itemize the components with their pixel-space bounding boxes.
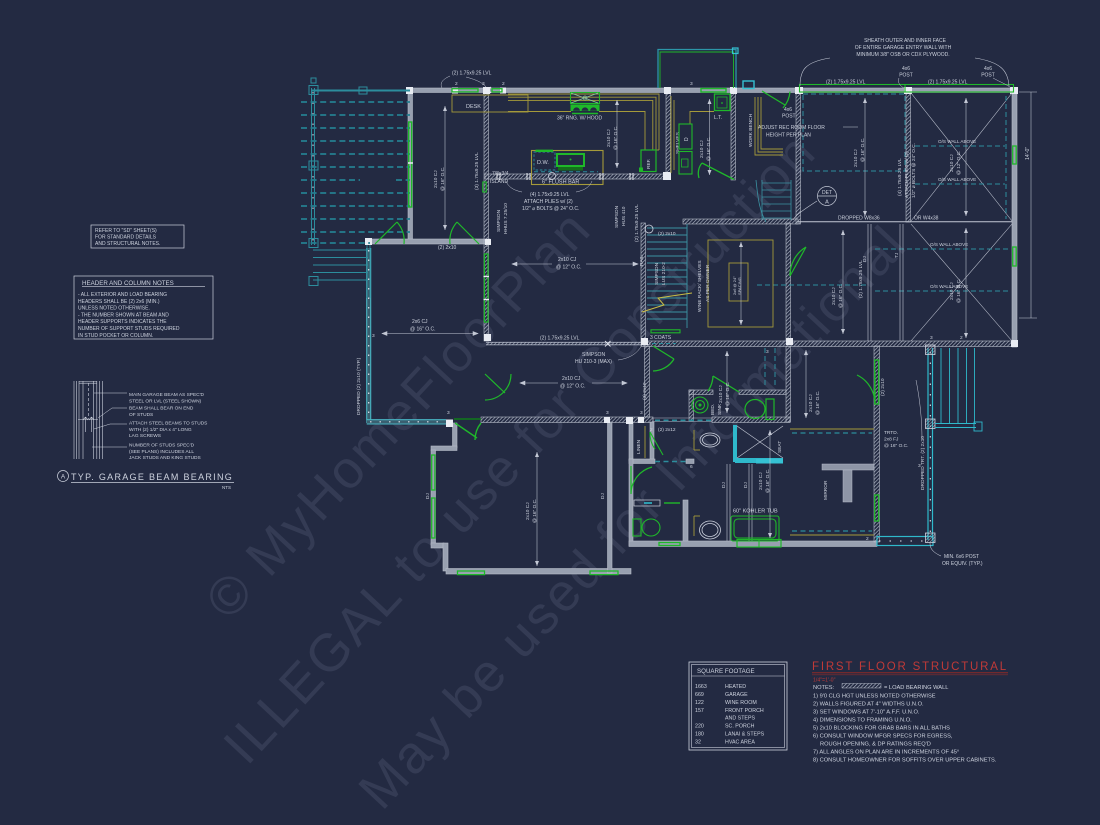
- svg-text:DJ: DJ: [743, 482, 749, 488]
- svg-text:SIMPSON: SIMPSON: [614, 205, 620, 228]
- svg-text:@ 16" O.C.: @ 16" O.C.: [613, 126, 619, 150]
- svg-text:@ 16" O.C.: @ 16" O.C.: [838, 284, 844, 308]
- svg-text:OR EQUIV. (TYP.): OR EQUIV. (TYP.): [942, 561, 983, 567]
- svg-text:2: 2: [960, 335, 963, 341]
- svg-text:3: 3: [690, 81, 693, 87]
- svg-text:3: 3: [486, 243, 489, 249]
- svg-text:(2) 1.75x9.25 LVL: (2) 1.75x9.25 LVL: [452, 71, 492, 77]
- svg-text:@ 12" O.C.: @ 12" O.C.: [560, 384, 585, 390]
- svg-text:LUS 210-2: LUS 210-2: [661, 262, 667, 285]
- svg-text:6) CONSULT WINDOW MFGR SPECS: 6) CONSULT WINDOW MFGR SPECS FOR EGRESS,: [813, 734, 953, 740]
- svg-text:5) 2x10 BLOCKING FOR GRAB BAR: 5) 2x10 BLOCKING FOR GRAB BARS IN ALL BA…: [813, 726, 950, 732]
- svg-text:MAIN GARAGE BEAM AS SPEC'D: MAIN GARAGE BEAM AS SPEC'D: [129, 392, 205, 398]
- svg-text:L.T.: L.T.: [714, 115, 722, 121]
- svg-text:UNLESS NOTED OTHERWISE.: UNLESS NOTED OTHERWISE.: [78, 306, 150, 312]
- svg-text:LANAI & STEPS: LANAI & STEPS: [725, 732, 765, 738]
- svg-text:JACK STUDS AND KING STUDS: JACK STUDS AND KING STUDS: [129, 455, 201, 461]
- svg-text:6" FLUSH BAR: 6" FLUSH BAR: [542, 180, 579, 186]
- svg-text:2: 2: [866, 536, 869, 542]
- svg-text:157: 157: [695, 708, 704, 714]
- svg-text:@ 12" O.C.: @ 12" O.C.: [956, 151, 962, 175]
- svg-text:AND STRUCTURAL NOTES.: AND STRUCTURAL NOTES.: [95, 241, 160, 247]
- svg-text:(3) 1.75x9.25 LVL: (3) 1.75x9.25 LVL: [474, 152, 480, 190]
- svg-text:@ 16" O.C.: @ 16" O.C.: [440, 167, 446, 191]
- svg-text:O/S WALL ABOVE: O/S WALL ABOVE: [938, 139, 976, 144]
- svg-text:(2) 2x10: (2) 2x10: [438, 245, 457, 251]
- svg-text:SC. PORCH: SC. PORCH: [725, 724, 755, 730]
- svg-text:2x10 CJ: 2x10 CJ: [606, 129, 612, 147]
- svg-text:HHUS 7.25/10: HHUS 7.25/10: [503, 203, 509, 234]
- svg-text:2x10 CJ: 2x10 CJ: [558, 257, 577, 263]
- svg-text:NUMBER OF SUPPORT STUDS REQUIR: NUMBER OF SUPPORT STUDS REQUIRED: [78, 326, 180, 332]
- svg-text:- THE NUMBER SHOWN AT BEAM AN: - THE NUMBER SHOWN AT BEAM AND: [78, 312, 169, 318]
- svg-text:3: 3: [606, 410, 609, 416]
- svg-text:14'-0": 14'-0": [1025, 147, 1031, 160]
- svg-text:POST: POST: [981, 73, 995, 79]
- svg-text:8) CONSULT HOMEOWNER FOR SOFF: 8) CONSULT HOMEOWNER FOR SOFFITS OVER UP…: [813, 758, 997, 764]
- svg-text:36" RNG. W/ HOOD: 36" RNG. W/ HOOD: [557, 116, 603, 122]
- svg-text:A: A: [61, 474, 66, 481]
- svg-text:3: 3: [372, 333, 375, 339]
- svg-text:4x6: 4x6: [902, 66, 910, 72]
- svg-text:(2) 1.75x9.25 LVL: (2) 1.75x9.25 LVL: [928, 80, 968, 86]
- svg-text:MINIMUM 3/8" OSB OR CDX PLYWOO: MINIMUM 3/8" OSB OR CDX PLYWOOD.: [856, 52, 949, 58]
- svg-text:1663: 1663: [695, 684, 707, 690]
- svg-text:3: 3: [482, 81, 485, 87]
- svg-text:= LOAD BEARING WALL: = LOAD BEARING WALL: [884, 685, 948, 691]
- svg-text:HEADERS SHALL BE (2) 2x6 (MIN.: HEADERS SHALL BE (2) 2x6 (MIN.): [78, 299, 160, 305]
- svg-text:TJ: TJ: [894, 252, 900, 258]
- svg-text:(4) 1.75x9.25 LVL: (4) 1.75x9.25 LVL: [897, 158, 903, 196]
- svg-text:@ 16" O.C.: @ 16" O.C.: [410, 327, 435, 333]
- svg-text:SEAT: SEAT: [777, 441, 783, 453]
- svg-text:(2) 1.75x9.25 LVL: (2) 1.75x9.25 LVL: [826, 80, 866, 86]
- svg-text:3: 3: [640, 410, 643, 416]
- svg-text:@ 16" O.C.: @ 16" O.C.: [884, 443, 908, 449]
- svg-text:HUS 410: HUS 410: [621, 206, 627, 226]
- svg-text:(2) 1.75x9.25 LVL: (2) 1.75x9.25 LVL: [634, 204, 640, 242]
- svg-text:LINEN: LINEN: [636, 439, 642, 454]
- svg-text:4x6: 4x6: [984, 66, 992, 72]
- svg-text:HEIGHT PER PLAN: HEIGHT PER PLAN: [766, 133, 811, 139]
- svg-text:DJ: DJ: [721, 482, 727, 488]
- svg-text:WINE ROOM: WINE ROOM: [725, 700, 757, 706]
- svg-text:2) WALLS FIGURED AT 4" WIDTHS: 2) WALLS FIGURED AT 4" WIDTHS U.N.O.: [813, 702, 924, 708]
- svg-text:3: 3: [930, 335, 933, 341]
- svg-text:D: D: [684, 137, 690, 141]
- svg-text:60" KOHLER TUB: 60" KOHLER TUB: [733, 509, 778, 515]
- svg-text:@ 16" O.C.: @ 16" O.C.: [956, 279, 962, 303]
- svg-text:4x6: 4x6: [784, 107, 792, 113]
- svg-text:ADJUST REC ROOM FLOOR: ADJUST REC ROOM FLOOR: [758, 125, 825, 131]
- svg-text:1) 9'0 CLG HGT UNLESS NOTED: 1) 9'0 CLG HGT UNLESS NOTED OTHERWISE: [813, 694, 936, 700]
- svg-text:GARAGE: GARAGE: [725, 692, 748, 698]
- svg-text:ROUGH OPENING, & DP RATINGS RE: ROUGH OPENING, & DP RATINGS REQ'D: [820, 742, 931, 748]
- svg-text:FOR STANDARD DETAILS: FOR STANDARD DETAILS: [95, 235, 157, 241]
- svg-text:HEATED: HEATED: [725, 684, 746, 690]
- svg-text:DET: DET: [822, 190, 832, 196]
- svg-text:DROPPED (2) 2x10 (TYP.): DROPPED (2) 2x10 (TYP.): [356, 357, 362, 415]
- svg-text:ATTACH STEEL BEAMS TO STUDS: ATTACH STEEL BEAMS TO STUDS: [129, 421, 207, 427]
- svg-text:NUMBER OF STUDS SPEC'D: NUMBER OF STUDS SPEC'D: [129, 443, 195, 449]
- svg-text:3) SET WINDOWS AT 7'-10" A.F.: 3) SET WINDOWS AT 7'-10" A.F.F. U.N.O.: [813, 710, 920, 716]
- svg-text:(2) 1.75x9.25 LVL: (2) 1.75x9.25 LVL: [858, 260, 864, 298]
- svg-text:STEEL OR LVL (STEEL SHOWN): STEEL OR LVL (STEEL SHOWN): [129, 398, 202, 404]
- svg-text:WITH (2) 1/2" DIA x 4" LONG: WITH (2) 1/2" DIA x 4" LONG: [129, 427, 192, 433]
- svg-text:ISLAND: ISLAND: [490, 179, 508, 185]
- svg-text:@ 16" O.C.: @ 16" O.C.: [532, 499, 538, 523]
- svg-text:REF.: REF.: [646, 159, 652, 169]
- svg-text:O/S WALL ABOVE: O/S WALL ABOVE: [938, 177, 976, 182]
- svg-text:220: 220: [695, 724, 704, 730]
- svg-text:SIMPSON: SIMPSON: [654, 262, 660, 285]
- svg-text:WORK BENCH: WORK BENCH: [748, 113, 754, 147]
- svg-text:(2) 1.75x9.25 LVL: (2) 1.75x9.25 LVL: [540, 336, 580, 342]
- svg-text:NTS: NTS: [222, 485, 231, 490]
- svg-text:POST: POST: [899, 73, 913, 79]
- svg-text:@ 16" O.C.: @ 16" O.C.: [765, 469, 771, 493]
- svg-text:OF STUDS: OF STUDS: [129, 412, 153, 418]
- svg-text:2x10 CJ: 2x10 CJ: [433, 170, 439, 188]
- svg-text:AND STEPS: AND STEPS: [725, 716, 755, 722]
- svg-text:1/2" ⌀ BOLTS @ 24" O.C.: 1/2" ⌀ BOLTS @ 24" O.C.: [911, 143, 917, 198]
- svg-text:SIMPSON: SIMPSON: [496, 209, 502, 232]
- svg-text:2x10 CJ: 2x10 CJ: [808, 394, 814, 412]
- svg-text:REFER TO "SD" SHEET(S): REFER TO "SD" SHEET(S): [95, 228, 157, 234]
- svg-text:A: A: [825, 200, 829, 206]
- svg-text:HEADER AND COLUMN NOTES: HEADER AND COLUMN NOTES: [82, 280, 174, 287]
- svg-text:O/S WALL ABOVE: O/S WALL ABOVE: [930, 242, 968, 247]
- svg-text:DROPPED W8x36: DROPPED W8x36: [838, 216, 880, 222]
- svg-text:@ 12" O.C.: @ 12" O.C.: [556, 265, 581, 271]
- svg-text:1/2" ⌀ BOLTS @ 24" O.C.: 1/2" ⌀ BOLTS @ 24" O.C.: [522, 206, 579, 212]
- svg-text:2x10 CJ: 2x10 CJ: [699, 140, 705, 158]
- svg-text:3: 3: [648, 341, 651, 347]
- svg-text:3: 3: [766, 349, 769, 355]
- svg-text:4) DIMENSIONS TO FRAMING U.N.: 4) DIMENSIONS TO FRAMING U.N.O.: [813, 718, 912, 724]
- svg-text:@ 16" O.C.: @ 16" O.C.: [725, 382, 731, 406]
- svg-text:SQUARE FOOTAGE: SQUARE FOOTAGE: [697, 668, 755, 675]
- svg-text:SHELVES: SHELVES: [675, 132, 681, 154]
- svg-text:AS PER OWNER: AS PER OWNER: [705, 264, 711, 302]
- svg-text:122: 122: [695, 700, 704, 706]
- svg-text:7) ALL ANGLES ON PLAN ARE IN: 7) ALL ANGLES ON PLAN ARE IN INCREMENTS …: [813, 750, 959, 756]
- svg-text:669: 669: [695, 692, 704, 698]
- svg-text:SHEATH OUTER AND INNER FACE: SHEATH OUTER AND INNER FACE: [864, 38, 947, 44]
- svg-text:D.W.: D.W.: [537, 160, 549, 166]
- svg-text:3 COATS: 3 COATS: [650, 335, 672, 341]
- svg-text:2: 2: [502, 81, 505, 87]
- svg-text:2x10 CJ: 2x10 CJ: [853, 149, 859, 167]
- svg-text:POST: POST: [782, 114, 796, 120]
- svg-text:MIN. 6x6 POST: MIN. 6x6 POST: [944, 554, 979, 560]
- svg-text:DJ: DJ: [425, 493, 431, 499]
- svg-text:(3) 2x10: (3) 2x10: [642, 382, 648, 400]
- svg-text:@ 16" O.C.: @ 16" O.C.: [860, 138, 866, 162]
- svg-text:IN STUD POCKET OR COLUMN.: IN STUD POCKET OR COLUMN.: [78, 333, 153, 339]
- svg-text:TRTD.: TRTD.: [884, 430, 898, 436]
- svg-text:HEADER SUPPORTS INDICATES THE: HEADER SUPPORTS INDICATES THE: [78, 319, 167, 325]
- svg-text:WINE RACK/ SHELVES: WINE RACK/ SHELVES: [697, 260, 703, 312]
- svg-text:2x10 CJ: 2x10 CJ: [949, 154, 955, 172]
- svg-text:180: 180: [695, 732, 704, 738]
- svg-text:(2) 2x10: (2) 2x10: [658, 231, 676, 237]
- svg-text:ATTACH PLIES w/ (2): ATTACH PLIES w/ (2): [904, 151, 910, 198]
- svg-text:BEAM SHALL BEAR ON END: BEAM SHALL BEAR ON END: [129, 406, 194, 412]
- svg-text:NOTES:: NOTES:: [813, 685, 835, 691]
- svg-text:OF ENTIRE GARAGE ENTRY WALL WI: OF ENTIRE GARAGE ENTRY WALL WITH: [855, 45, 952, 51]
- svg-text:2x10 CJ: 2x10 CJ: [718, 385, 724, 403]
- svg-text:ATTACH PLIES w/ (2): ATTACH PLIES w/ (2): [524, 199, 573, 205]
- svg-text:2x8 FJ: 2x8 FJ: [884, 437, 899, 443]
- svg-text:(2) 2x12: (2) 2x12: [658, 427, 676, 433]
- svg-text:LAG SCREWS: LAG SCREWS: [129, 433, 161, 439]
- svg-text:RAIL: RAIL: [639, 255, 645, 266]
- svg-text:2: 2: [455, 81, 458, 87]
- svg-text:6: 6: [690, 464, 693, 470]
- svg-text:FIRST FLOOR STRUCTURAL: FIRST FLOOR STRUCTURAL: [812, 661, 1008, 673]
- svg-text:HVAC AREA: HVAC AREA: [725, 740, 755, 746]
- svg-text:2: 2: [650, 427, 653, 433]
- svg-text:(2) 2x10: (2) 2x10: [880, 378, 886, 396]
- svg-text:SINK: SINK: [717, 403, 723, 415]
- svg-text:3: 3: [918, 463, 921, 469]
- svg-text:(4) 1.75x9.25 LVL: (4) 1.75x9.25 LVL: [530, 192, 570, 198]
- svg-text:FRONT PORCH: FRONT PORCH: [725, 708, 764, 714]
- svg-text:2x6 CJ: 2x6 CJ: [412, 319, 428, 325]
- svg-text:2x10 CJ: 2x10 CJ: [525, 502, 531, 520]
- svg-text:HU 210-3 (MAX): HU 210-3 (MAX): [575, 359, 612, 365]
- svg-text:MIRROR: MIRROR: [823, 480, 829, 500]
- svg-text:2x10 CJ: 2x10 CJ: [758, 472, 764, 490]
- svg-text:32: 32: [695, 740, 701, 746]
- svg-text:2x10 CJ: 2x10 CJ: [562, 376, 581, 382]
- svg-text:DESK: DESK: [466, 104, 481, 110]
- svg-text:@ 16" O.C.: @ 16" O.C.: [815, 391, 821, 415]
- svg-text:1/4"=1'-0": 1/4"=1'-0": [813, 678, 836, 684]
- svg-text:TYP. GARAGE BEAM BEARING: TYP. GARAGE BEAM BEARING: [71, 472, 233, 482]
- svg-text:3: 3: [447, 410, 450, 416]
- svg-text:- ALL EXTERIOR AND LOAD BEARI: - ALL EXTERIOR AND LOAD BEARING: [78, 292, 167, 298]
- svg-text:DJ: DJ: [600, 493, 606, 499]
- svg-text:2x10 CJ: 2x10 CJ: [831, 287, 837, 305]
- svg-text:BED.: BED.: [710, 404, 716, 415]
- svg-text:(SEE PLANS) INCLUDES ALL: (SEE PLANS) INCLUDES ALL: [129, 449, 194, 455]
- svg-text:DROPPED TRT. (2) 2x10: DROPPED TRT. (2) 2x10: [920, 436, 926, 490]
- svg-text:OR W4x38: OR W4x38: [914, 216, 939, 222]
- svg-text:2x10 CJ: 2x10 CJ: [949, 282, 955, 300]
- svg-text:SIMPSON: SIMPSON: [582, 352, 605, 358]
- svg-text:@ 16" O.C.: @ 16" O.C.: [706, 137, 712, 161]
